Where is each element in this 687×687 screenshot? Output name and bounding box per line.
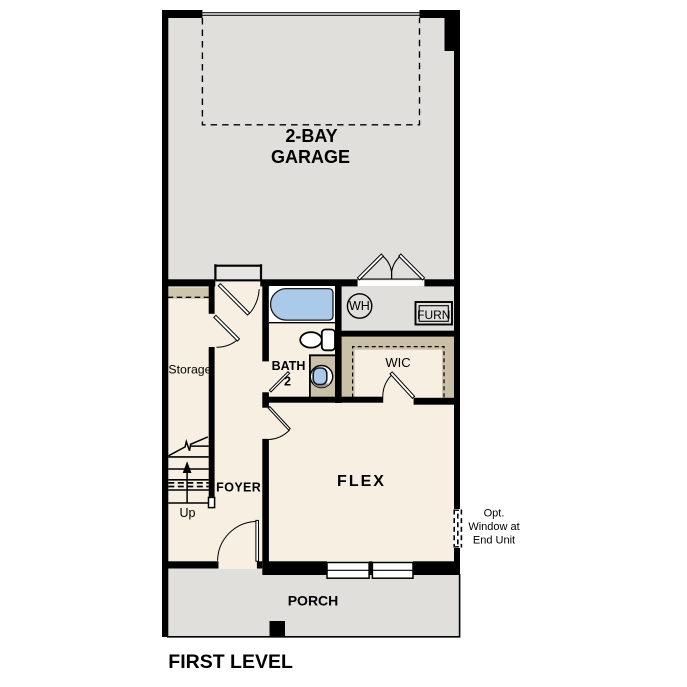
- svg-text:Up: Up: [180, 506, 196, 520]
- svg-text:WIC: WIC: [385, 355, 410, 370]
- svg-text:2: 2: [284, 375, 291, 389]
- svg-text:Window at: Window at: [468, 521, 519, 533]
- svg-text:2-BAY: 2-BAY: [285, 126, 337, 146]
- svg-text:End Unit: End Unit: [473, 535, 515, 547]
- svg-text:FURN: FURN: [417, 308, 450, 322]
- svg-text:BATH: BATH: [272, 359, 306, 373]
- svg-text:PORCH: PORCH: [288, 593, 339, 609]
- svg-text:Opt.: Opt.: [484, 508, 505, 520]
- svg-text:FLEX: FLEX: [337, 473, 386, 490]
- svg-text:FIRST LEVEL: FIRST LEVEL: [168, 651, 293, 673]
- svg-text:Storage: Storage: [168, 363, 211, 377]
- svg-text:WH: WH: [349, 299, 370, 313]
- svg-text:GARAGE: GARAGE: [271, 147, 350, 167]
- svg-text:FOYER: FOYER: [216, 481, 261, 495]
